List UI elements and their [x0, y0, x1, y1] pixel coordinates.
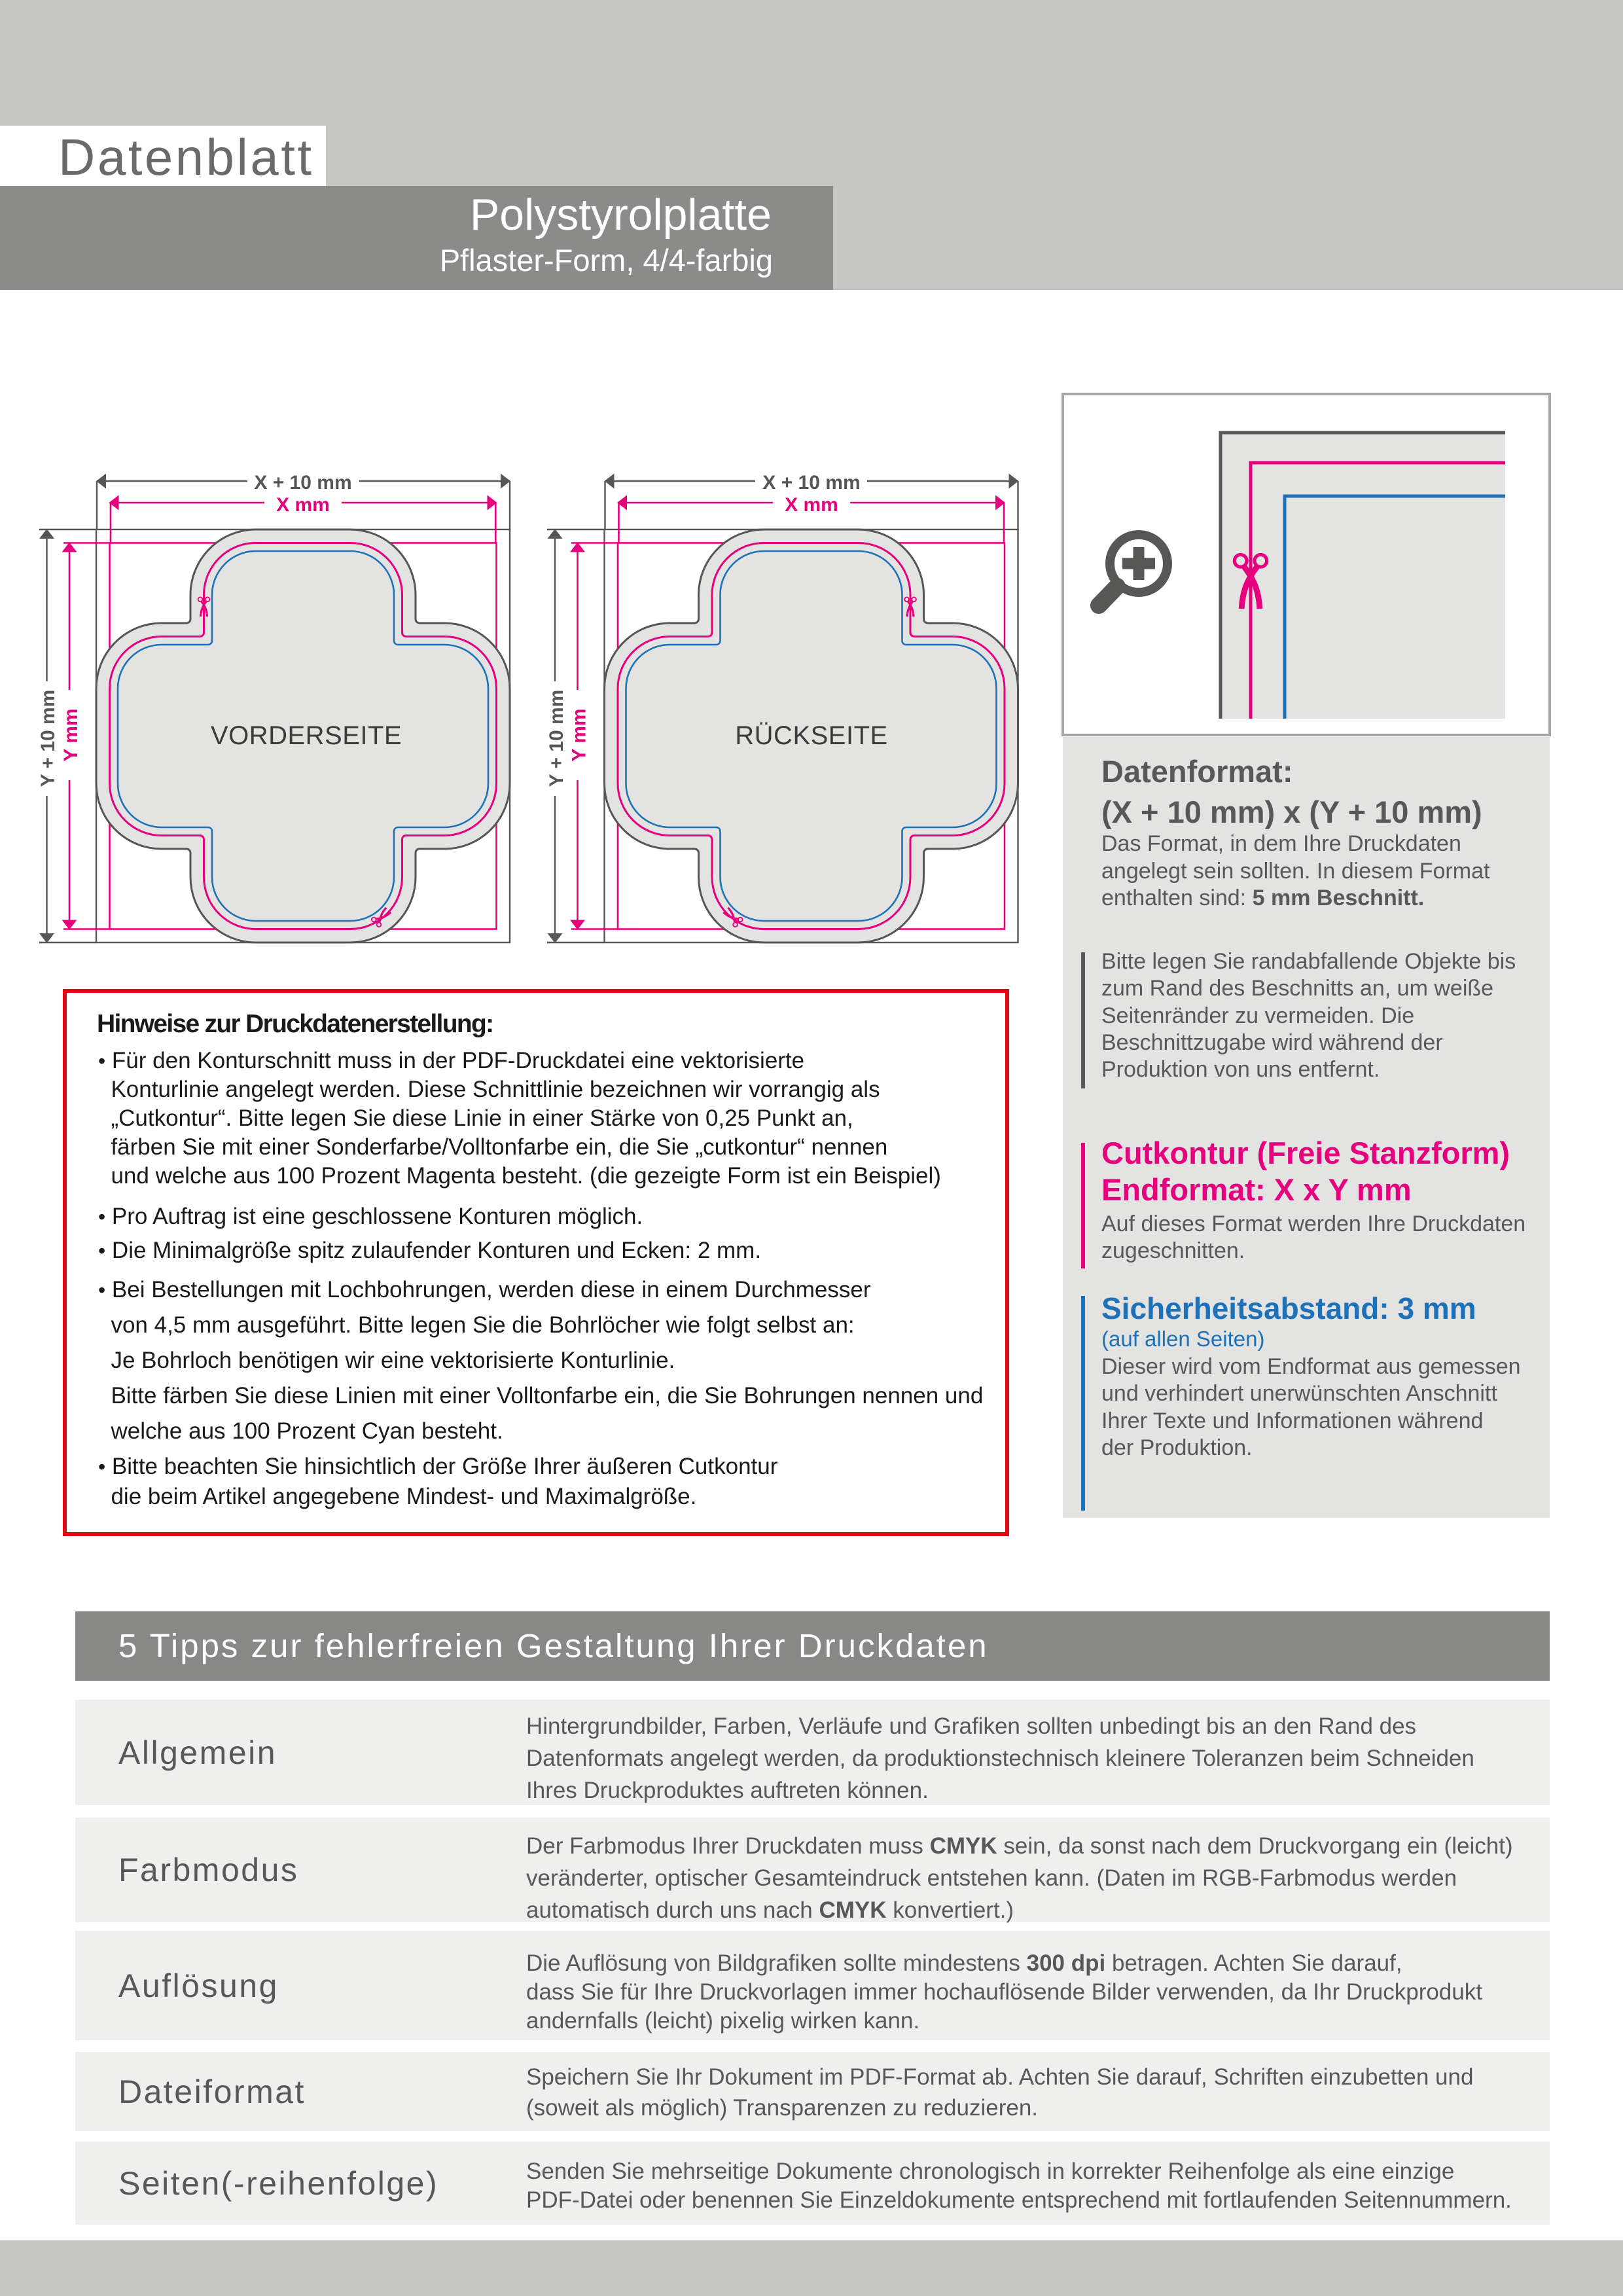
- svg-text:Y + 10 mm: Y + 10 mm: [546, 690, 567, 787]
- svg-text:X mm: X mm: [276, 494, 330, 516]
- svg-text:RÜCKSEITE: RÜCKSEITE: [735, 721, 887, 750]
- svg-text:Y mm: Y mm: [569, 708, 590, 761]
- svg-text:X + 10 mm: X + 10 mm: [254, 472, 351, 493]
- svg-text:Y + 10 mm: Y + 10 mm: [37, 690, 59, 787]
- svg-text:X mm: X mm: [785, 494, 838, 516]
- svg-text:X + 10 mm: X + 10 mm: [762, 472, 860, 493]
- svg-text:VORDERSEITE: VORDERSEITE: [211, 721, 402, 750]
- svg-text:Y mm: Y mm: [60, 708, 82, 761]
